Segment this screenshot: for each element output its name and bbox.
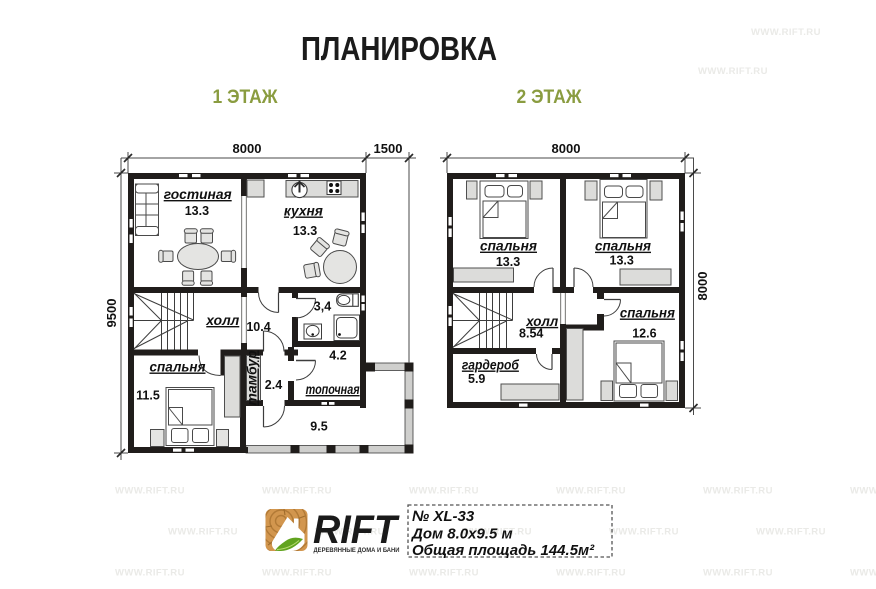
- svg-text:WWW.RIFT.RU: WWW.RIFT.RU: [698, 66, 768, 77]
- svg-text:WWW.RIFT.RU: WWW.RIFT.RU: [751, 27, 821, 38]
- svg-text:9.5: 9.5: [310, 420, 327, 434]
- svg-text:3,4: 3,4: [314, 300, 331, 314]
- svg-text:Дом 8.0х9.5 м: Дом 8.0х9.5 м: [410, 526, 513, 543]
- svg-text:WWW.RIFT.RU: WWW.RIFT.RU: [556, 486, 626, 497]
- svg-text:13.3: 13.3: [496, 255, 520, 269]
- svg-text:1500: 1500: [374, 141, 403, 156]
- svg-text:WWW.RIFT.RU: WWW.RIFT.RU: [262, 486, 332, 497]
- svg-text:WWW.RIFT.RU: WWW.RIFT.RU: [609, 527, 679, 538]
- svg-text:WWW.RIFT.RU: WWW.RIFT.RU: [409, 486, 479, 497]
- svg-text:WWW.RIFT.RU: WWW.RIFT.RU: [850, 568, 876, 579]
- svg-text:13.3: 13.3: [185, 204, 209, 218]
- svg-text:8000: 8000: [552, 141, 581, 156]
- svg-text:WWW.RIFT.RU: WWW.RIFT.RU: [115, 486, 185, 497]
- svg-text:13.3: 13.3: [610, 253, 634, 267]
- svg-text:тамбур: тамбур: [244, 350, 260, 406]
- svg-text:топочная: топочная: [306, 381, 360, 397]
- svg-text:WWW.RIFT.RU: WWW.RIFT.RU: [409, 568, 479, 579]
- svg-text:8000: 8000: [695, 272, 710, 301]
- svg-text:8000: 8000: [233, 141, 262, 156]
- svg-text:спальня: спальня: [150, 359, 206, 375]
- svg-text:WWW.RIFT.RU: WWW.RIFT.RU: [168, 527, 238, 538]
- svg-text:2 ЭТАЖ: 2 ЭТАЖ: [517, 86, 582, 108]
- svg-text:гостиная: гостиная: [164, 186, 232, 202]
- svg-text:гардероб: гардероб: [462, 357, 519, 373]
- svg-text:1 ЭТАЖ: 1 ЭТАЖ: [213, 86, 278, 108]
- svg-text:кухня: кухня: [284, 203, 323, 219]
- svg-text:12.6: 12.6: [632, 327, 656, 341]
- svg-text:WWW.RIFT.RU: WWW.RIFT.RU: [850, 486, 876, 497]
- svg-text:11.5: 11.5: [136, 389, 160, 403]
- svg-text:WWW.RIFT.RU: WWW.RIFT.RU: [703, 486, 773, 497]
- svg-text:10.4: 10.4: [246, 320, 270, 334]
- svg-text:Общая площадь 144.5м²: Общая площадь 144.5м²: [412, 542, 595, 559]
- svg-text:RIFT: RIFT: [313, 508, 400, 552]
- svg-text:WWW.RIFT.RU: WWW.RIFT.RU: [115, 568, 185, 579]
- svg-text:WWW.RIFT.RU: WWW.RIFT.RU: [262, 568, 332, 579]
- svg-text:WWW.RIFT.RU: WWW.RIFT.RU: [703, 568, 773, 579]
- svg-text:9500: 9500: [104, 299, 119, 328]
- svg-text:2.4: 2.4: [265, 378, 282, 392]
- svg-text:спальня: спальня: [620, 305, 675, 321]
- svg-text:холл: холл: [205, 312, 239, 328]
- svg-text:спальня: спальня: [480, 238, 537, 254]
- svg-text:ПЛАНИРОВКА: ПЛАНИРОВКА: [301, 31, 497, 68]
- svg-text:№ XL-33: № XL-33: [412, 508, 475, 525]
- svg-text:13.3: 13.3: [293, 224, 317, 238]
- svg-text:спальня: спальня: [595, 238, 651, 254]
- svg-text:4.2: 4.2: [329, 349, 346, 363]
- svg-text:ДЕРЕВЯННЫЕ ДОМА И БАНИ: ДЕРЕВЯННЫЕ ДОМА И БАНИ: [314, 547, 400, 554]
- svg-text:WWW.RIFT.RU: WWW.RIFT.RU: [756, 527, 826, 538]
- svg-text:5.9: 5.9: [468, 372, 485, 386]
- svg-text:WWW.RIFT.RU: WWW.RIFT.RU: [556, 568, 626, 579]
- svg-text:8.54: 8.54: [519, 326, 543, 340]
